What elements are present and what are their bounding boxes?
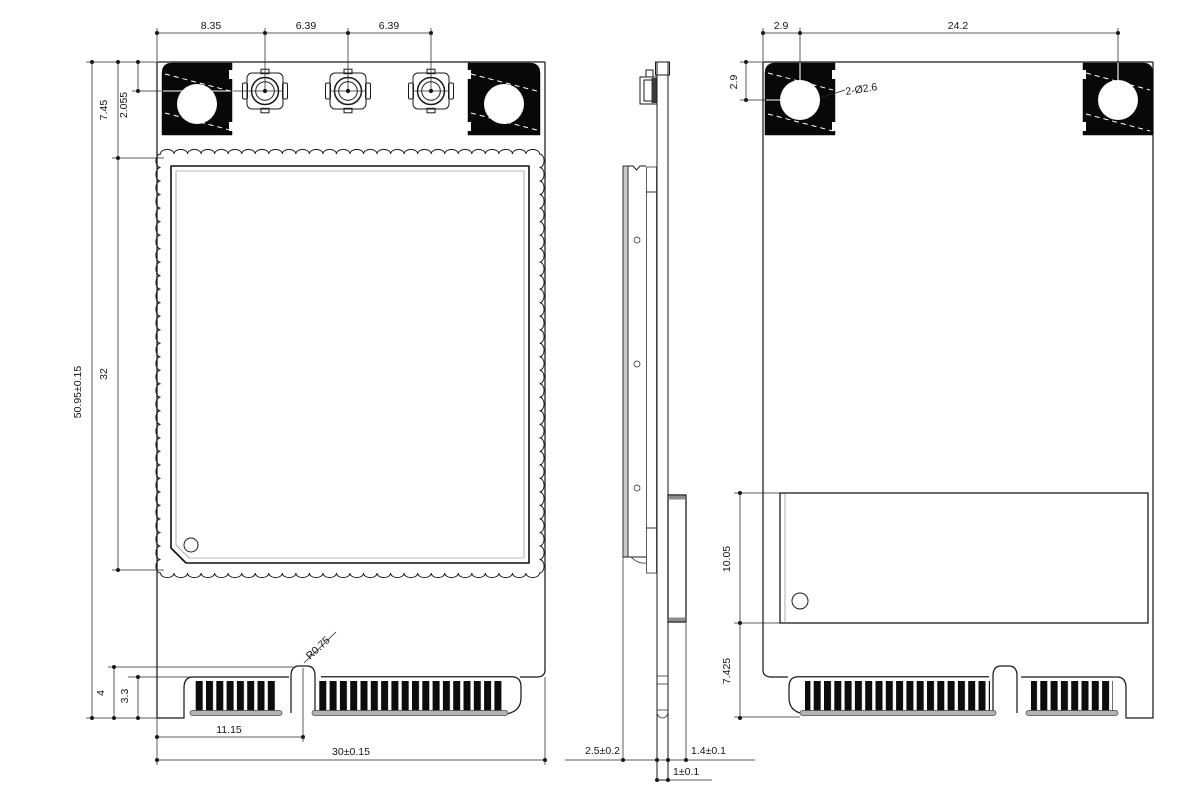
side-back-component-profile — [668, 495, 686, 622]
dim-label-ant1-x: 8.35 — [201, 20, 222, 32]
front-mounting-tab-right — [467, 63, 540, 135]
back-component — [780, 493, 1148, 623]
dim-label-back-thickness: 1.4±0.1 — [691, 745, 726, 757]
mechanical-drawing-page: 8.35 6.39 6.39 7.45 2.055 50.95±0.15 32 … — [0, 0, 1200, 791]
dim-label-total-thickness: 2.5±0.2 — [585, 745, 620, 757]
back-mounting-hole-left — [780, 80, 820, 120]
front-mounting-hole-left — [177, 84, 217, 124]
back-mounting-tab-right — [1082, 63, 1153, 135]
dim-label-component-offset: 7.425 — [721, 658, 733, 684]
dim-label-shield-height: 32 — [98, 368, 110, 380]
rf-shield — [156, 149, 544, 577]
side-pcb-profile — [656, 62, 670, 780]
back-mounting-hole-right — [1098, 80, 1138, 120]
pin1-marker — [184, 538, 198, 552]
dim-label-hole-diameter: 2-Ø2.6 — [845, 81, 879, 98]
dim-label-component-height: 10.05 — [721, 546, 733, 572]
dim-label-hole-y: 2.9 — [728, 75, 740, 90]
front-view: 8.35 6.39 6.39 7.45 2.055 50.95±0.15 32 … — [72, 20, 547, 765]
dim-label-ant3-x: 6.39 — [379, 20, 400, 32]
side-shield-fence — [647, 192, 657, 528]
side-dimension-lines — [565, 623, 755, 782]
front-gold-fingers — [190, 681, 508, 716]
side-shield-profile — [623, 166, 657, 760]
dim-label-hole-x: 2.9 — [774, 20, 789, 32]
dim-label-overall-width: 30±0.15 — [332, 746, 370, 758]
front-mounting-hole-right — [484, 84, 524, 124]
dim-label-hole-pitch: 24.2 — [948, 20, 969, 32]
dim-label-overall-height: 50.95±0.15 — [72, 366, 84, 419]
dim-label-key-radius: R0.75 — [304, 634, 333, 662]
dim-label-ant-center: 2.055 — [118, 92, 130, 118]
dim-label-shield-top: 7.45 — [98, 100, 110, 121]
back-mounting-tab-left — [765, 63, 836, 135]
back-view: 2.9 24.2 2.9 2-Ø2.6 10.05 7.425 — [721, 20, 1153, 720]
dim-label-pcb-thickness: 1±0.1 — [673, 766, 699, 778]
front-pcb-outline — [157, 62, 545, 718]
dim-label-key-offset: 11.15 — [216, 724, 242, 736]
dim-label-finger-height: 3.3 — [119, 689, 131, 704]
side-ufl-profile — [640, 70, 657, 104]
dim-label-edge-height: 4 — [95, 690, 107, 696]
dim-label-ant2-x: 6.39 — [296, 20, 317, 32]
back-key-notch — [993, 666, 1017, 713]
back-gold-fingers — [800, 681, 1118, 716]
rf-shield-scallop-edge — [156, 149, 544, 577]
front-mounting-tab-left — [162, 63, 233, 135]
